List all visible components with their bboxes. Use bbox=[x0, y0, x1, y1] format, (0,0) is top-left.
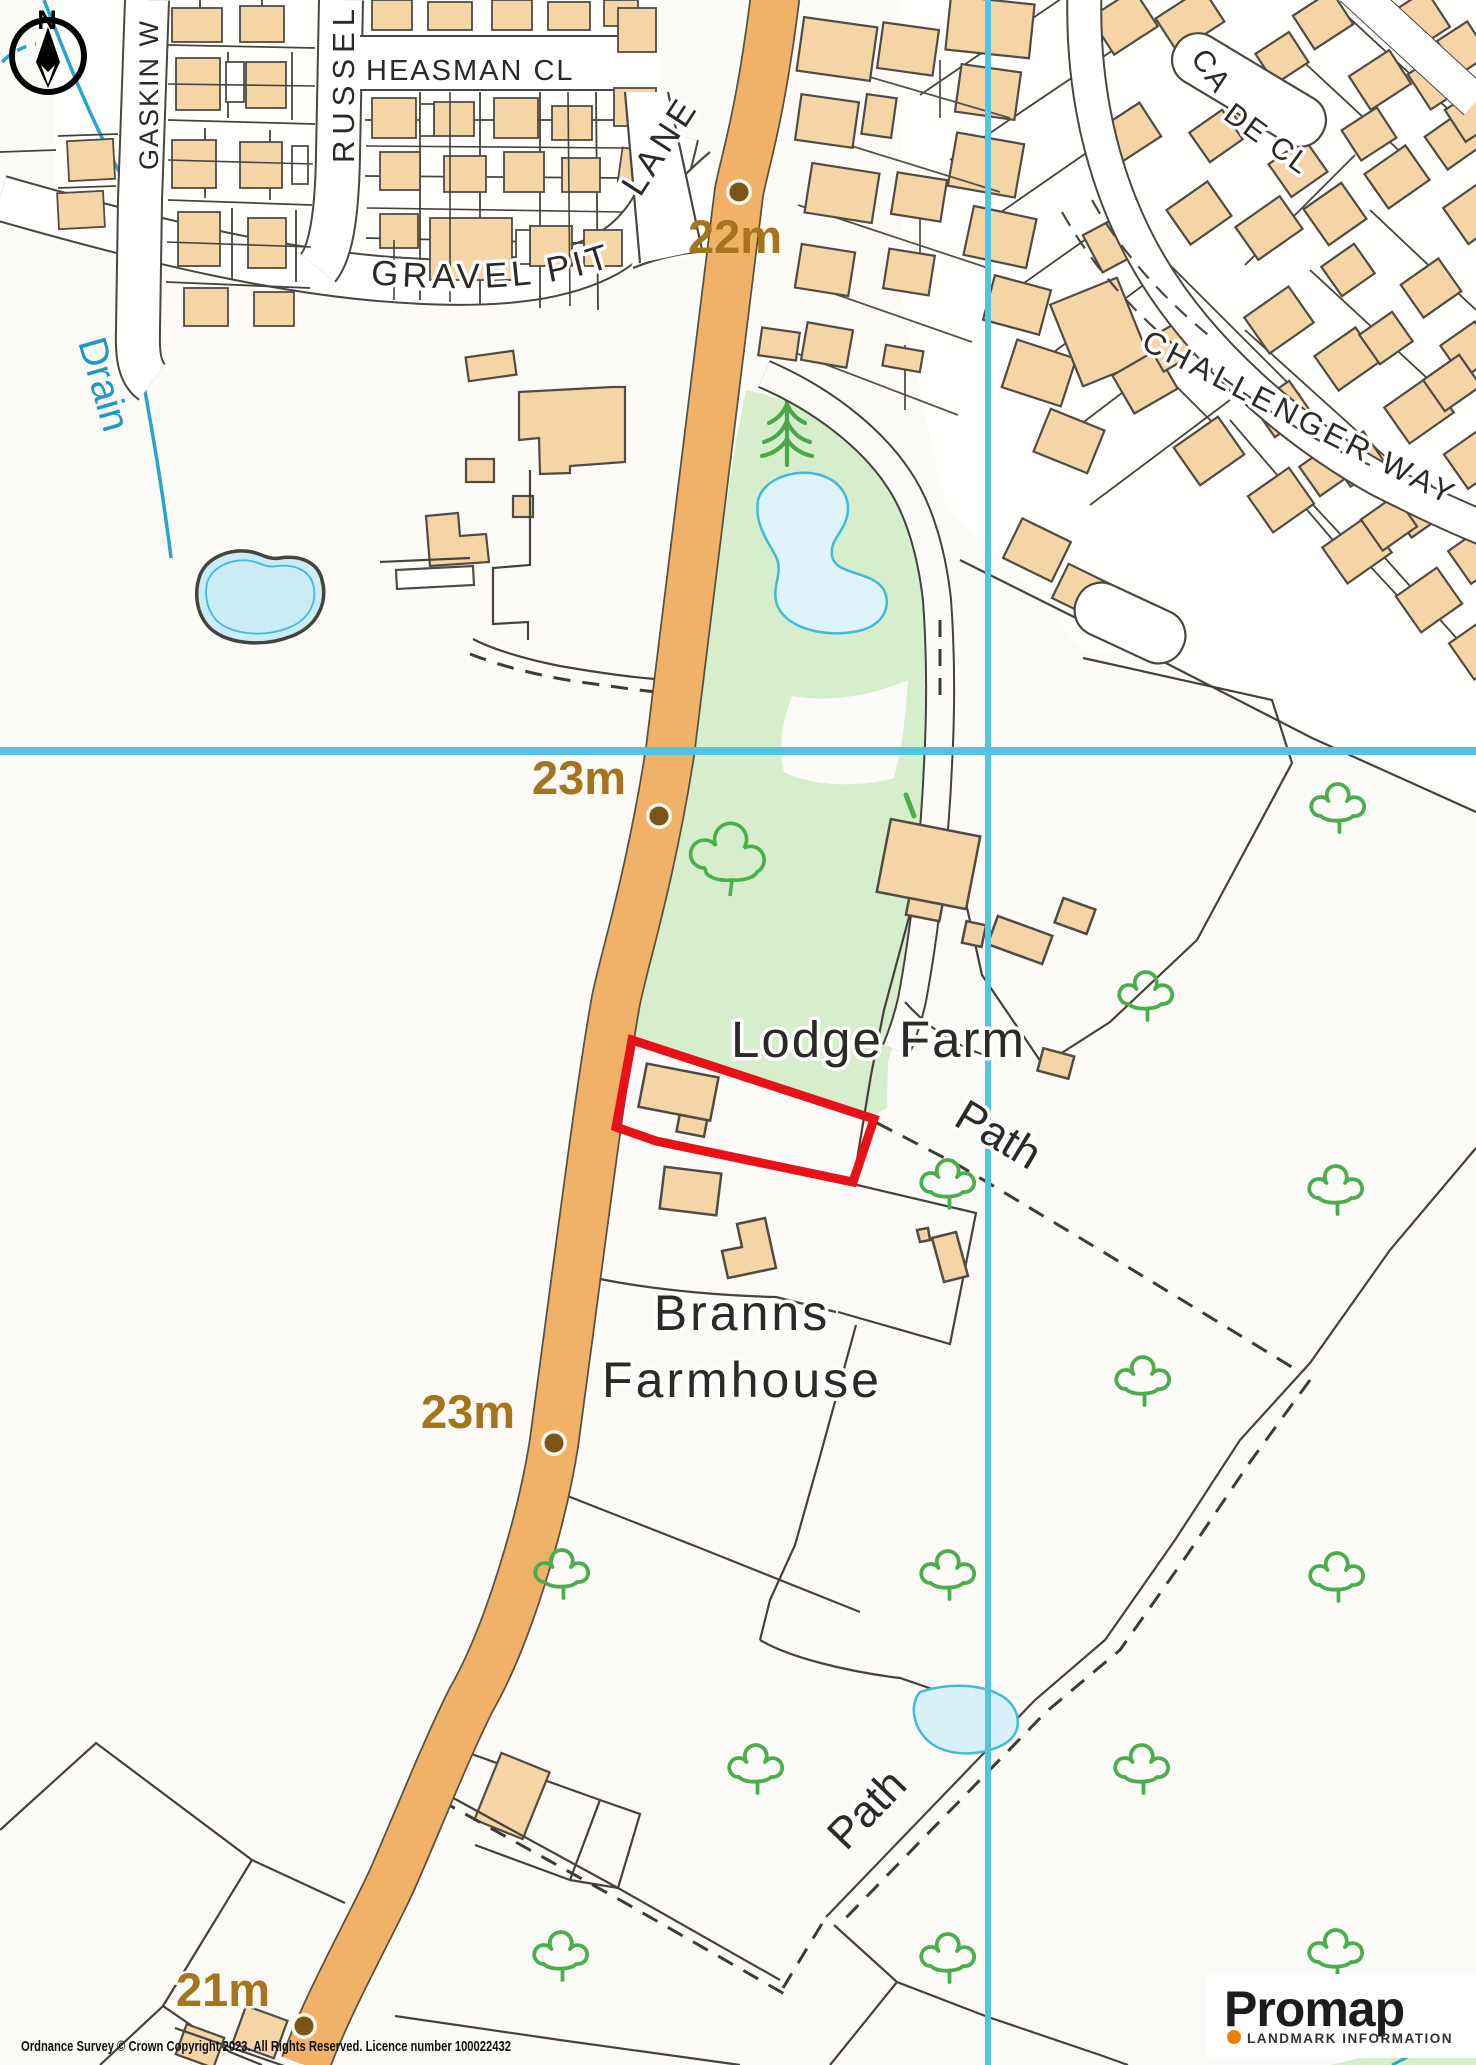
svg-text:22m: 22m bbox=[688, 210, 782, 263]
svg-text:23m: 23m bbox=[421, 1385, 515, 1438]
svg-text:Ordnance Survey © Crown Copyri: Ordnance Survey © Crown Copyright 2023. … bbox=[21, 2038, 511, 2055]
svg-text:23m: 23m bbox=[532, 751, 626, 804]
svg-text:RUSSEL: RUSSEL bbox=[326, 3, 361, 163]
svg-text:Promap: Promap bbox=[1224, 1981, 1404, 2037]
svg-text:GASKIN W: GASKIN W bbox=[134, 19, 164, 170]
svg-text:HEASMAN CL: HEASMAN CL bbox=[366, 55, 575, 87]
svg-text:Farmhouse: Farmhouse bbox=[602, 1352, 882, 1408]
svg-text:Branns: Branns bbox=[654, 1285, 830, 1341]
svg-text:N: N bbox=[37, 5, 57, 35]
svg-text:Lodge Farm: Lodge Farm bbox=[731, 1011, 1026, 1068]
svg-text:21m: 21m bbox=[176, 1963, 270, 2016]
svg-text:LANDMARK INFORMATION: LANDMARK INFORMATION bbox=[1247, 2031, 1453, 2046]
